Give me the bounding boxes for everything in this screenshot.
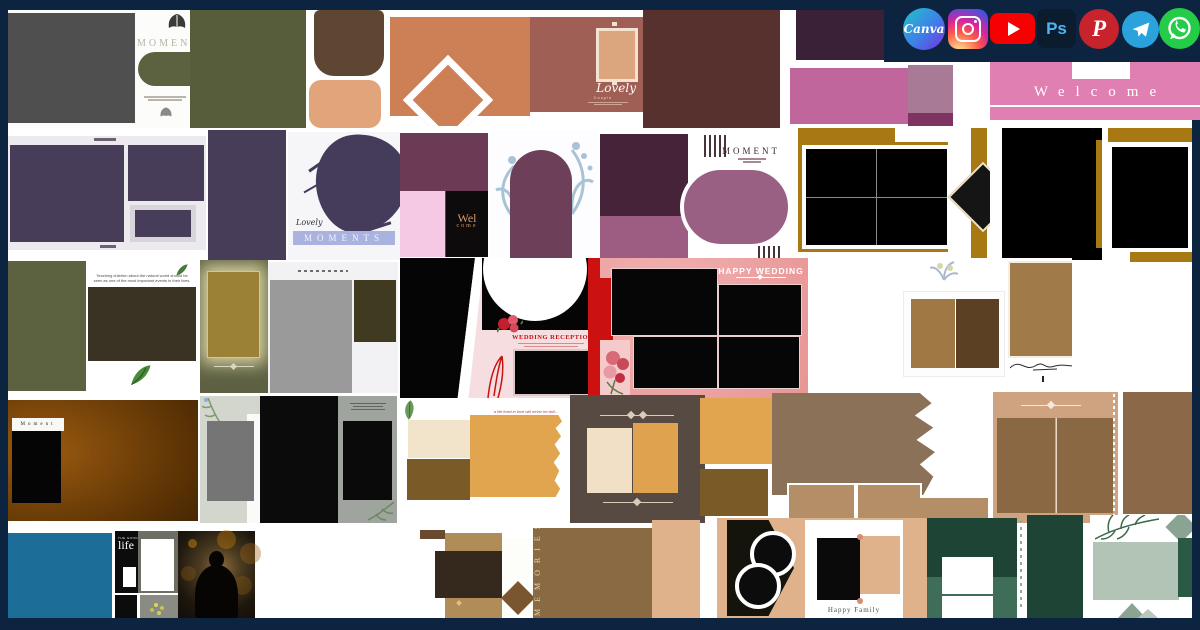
template-brush-moments: Lovely MOMENTS <box>288 132 400 260</box>
dotted-column <box>1020 520 1022 610</box>
template-sage <box>200 396 260 523</box>
photo-grid <box>802 145 951 249</box>
photo-placeholder <box>354 280 396 342</box>
pink-band <box>990 107 1200 120</box>
template-title: Welcome <box>1023 84 1167 101</box>
brown-block: MEMORIES <box>533 528 652 618</box>
photo-placeholder <box>314 10 384 76</box>
floral-doodle <box>100 245 116 248</box>
brown-panel <box>1123 392 1192 514</box>
signature-scribble <box>1005 356 1072 376</box>
text-block: Wel come <box>446 191 488 257</box>
photo-placeholder <box>135 210 191 237</box>
photo-placeholder <box>435 551 502 598</box>
paper-plane-icon <box>1131 20 1151 40</box>
photo-placeholder <box>128 145 204 201</box>
photo-placeholder <box>1112 147 1188 248</box>
template-lovely-couple: Lovely Couple <box>530 17 643 112</box>
photo-placeholder <box>911 299 955 368</box>
bokeh-dots <box>188 539 197 548</box>
template-caption: a life lived in love will never be dull.… <box>485 409 567 414</box>
amber-brown-column <box>700 396 772 518</box>
template-green-leaves <box>1090 515 1192 618</box>
text-block: THE GOOD life <box>115 531 138 593</box>
template-rounded-frames <box>306 10 390 128</box>
photo-placeholder <box>408 420 470 458</box>
photo-placeholder <box>718 284 802 336</box>
template-olive-glow <box>200 260 268 393</box>
palm-leaf-icon <box>482 354 508 400</box>
caption-line <box>594 104 622 105</box>
leaf-icon <box>128 363 154 387</box>
youtube-icon[interactable] <box>990 13 1035 44</box>
template-wedding-reception: WEDDING RECEPTION <box>400 258 600 403</box>
gold-bar <box>1130 252 1192 262</box>
olive-panel <box>8 261 86 391</box>
template-gold-grid <box>790 128 990 262</box>
template-moments: MOMENTS <box>8 10 190 128</box>
photo-placeholder <box>600 216 688 260</box>
caption-line <box>743 161 761 163</box>
barcode-deco <box>758 246 782 258</box>
template-tan-ornament <box>993 392 1118 523</box>
template-good-life: THE GOOD life <box>112 530 267 618</box>
template-dark-ornament <box>570 395 705 523</box>
photo-placeholder <box>138 52 190 86</box>
photo-placeholder <box>8 13 135 123</box>
monstera-leaf-icon <box>158 106 174 122</box>
template-subtitle: Couple <box>570 95 636 100</box>
red-stripe <box>588 258 600 403</box>
photo-placeholder <box>1008 261 1072 358</box>
photo-placeholder <box>997 418 1055 513</box>
gold-bar <box>1108 128 1192 142</box>
photo-placeholder <box>700 398 772 464</box>
caption-line <box>148 99 182 101</box>
brown-sliver <box>420 530 445 539</box>
bokeh-block <box>140 595 178 618</box>
template-title: MEMORIES <box>533 532 542 616</box>
canva-icon[interactable]: Canva <box>903 8 945 50</box>
photo-placeholder <box>1093 542 1179 600</box>
template-title: MOMENTS <box>304 233 384 243</box>
photo-placeholder <box>908 113 953 126</box>
photo-placeholder <box>1056 418 1113 513</box>
camera-flash-dot <box>974 20 977 23</box>
photo-placeholder <box>270 280 352 393</box>
photo-placeholder <box>908 65 953 113</box>
caption-line <box>144 96 186 98</box>
template-title-line1: Wel <box>446 213 488 223</box>
photo-placeholder <box>680 166 790 248</box>
white-panel: Happy Family <box>805 520 903 618</box>
template-taupe-wavy <box>772 393 988 523</box>
ornament-divider <box>600 415 674 416</box>
pink-blocks <box>790 62 990 128</box>
olive-panel <box>190 10 306 128</box>
template-caption: Happy Family <box>805 606 903 614</box>
template-label: Moment <box>21 422 56 427</box>
template-purple-frames <box>8 136 206 250</box>
caption-line <box>738 158 766 160</box>
template-script: Lovely <box>296 218 322 227</box>
template-memories: MEMORIES <box>420 528 652 618</box>
photo-placeholder <box>817 538 860 600</box>
photo-placeholder <box>596 28 638 82</box>
pink-band <box>990 62 1072 79</box>
rose-cluster-icon <box>497 314 523 334</box>
leaf-sprig-icon <box>368 502 396 522</box>
exclaim-dot <box>1042 376 1044 382</box>
template-brown-squares <box>810 258 1072 395</box>
ornament-divider <box>298 270 348 272</box>
template-moment-pill: MOMENT <box>600 130 790 260</box>
black-gold-panel <box>1002 128 1102 260</box>
tan-panel <box>652 520 700 618</box>
label-box: Moment <box>12 418 64 431</box>
torn-white-edge <box>254 531 267 618</box>
photo-placeholder <box>343 421 392 500</box>
frame-dot <box>612 22 617 26</box>
floral-doodle <box>94 138 116 141</box>
person-body <box>195 565 238 618</box>
photo-placeholder <box>141 539 174 591</box>
photo-placeholder <box>115 595 137 618</box>
photo-placeholder <box>787 483 856 522</box>
template-welcome: Welcome <box>990 62 1200 120</box>
template-wel-come: Wel come <box>400 133 488 257</box>
photo-placeholder <box>587 428 632 493</box>
caption-line <box>518 343 584 344</box>
mountains-icon <box>1118 601 1162 618</box>
photo-placeholder <box>513 349 594 396</box>
photo-placeholder <box>207 271 260 358</box>
flower-dots <box>154 603 158 607</box>
sparkle <box>456 600 462 606</box>
template-caption: Teaching children about the natural worl… <box>92 273 192 283</box>
photo-placeholder <box>790 68 908 124</box>
pinterest-label: P <box>1092 16 1106 42</box>
template-arch <box>490 130 598 260</box>
photo-placeholder <box>700 469 768 516</box>
photo-placeholder <box>207 421 254 501</box>
rose-bouquet-icon <box>601 348 631 396</box>
photo-placeholder <box>942 557 993 594</box>
template-title: life <box>118 540 138 551</box>
collage-banner: MOMENTS Lovely Couple Canva Ps P <box>0 0 1200 630</box>
photo-placeholder <box>718 336 800 389</box>
photo-placeholder <box>856 483 922 522</box>
template-green-frames <box>927 518 1017 618</box>
phone-bubble-icon <box>1166 15 1193 42</box>
template-gray-frames <box>268 262 398 393</box>
caption-line <box>588 102 628 103</box>
pink-band: Welcome <box>990 79 1200 105</box>
flower-dot <box>857 598 863 604</box>
gold-sliver <box>1096 140 1102 248</box>
template-title: MOMENT <box>716 146 786 156</box>
ornament-diamond <box>633 498 641 506</box>
template-moment-dark: Moment <box>8 400 198 521</box>
template-terracotta <box>390 12 530 126</box>
template-title: Lovely <box>570 81 636 95</box>
flower-dot <box>857 534 863 540</box>
template-title-line2: come <box>446 223 488 229</box>
teal-panel <box>8 533 112 618</box>
photo-placeholder <box>918 498 988 520</box>
purple-panel <box>208 130 286 260</box>
photo-placeholder <box>12 431 61 503</box>
caption-line <box>351 409 385 410</box>
wavy-photo <box>772 393 940 495</box>
camera-glyph <box>955 16 981 42</box>
template-title: WEDDING RECEPTION <box>512 334 592 341</box>
ornament-diamond <box>1047 401 1055 409</box>
canva-label: Canva <box>904 22 945 36</box>
pink-band <box>1130 62 1200 79</box>
leaf-icon <box>402 400 419 421</box>
caption-line <box>524 346 578 347</box>
template-title: MOMENTS <box>137 38 190 49</box>
photoshop-icon[interactable]: Ps <box>1037 9 1076 48</box>
title-band: MOMENTS <box>293 231 395 245</box>
ornament-diamond <box>627 411 635 419</box>
pinterest-icon[interactable]: P <box>1079 9 1119 49</box>
ornament-diamond <box>639 411 647 419</box>
play-icon <box>1008 22 1020 36</box>
silhouette-photo <box>178 531 255 618</box>
template-happy-family: Happy Family <box>700 518 927 618</box>
photo-placeholder <box>633 336 718 389</box>
template-nature-quote: Teaching children about the natural worl… <box>86 261 198 391</box>
maroon-panel <box>643 10 780 128</box>
monstera-leaf-icon <box>166 12 188 36</box>
whatsapp-icon[interactable] <box>1159 8 1200 49</box>
photo-placeholder <box>309 80 381 128</box>
photo-placeholder <box>600 134 688 216</box>
photo-placeholder <box>956 299 999 368</box>
template-gold-black <box>1108 128 1192 262</box>
template-happy-wedding: HAPPY WEDDING <box>600 258 808 403</box>
dark-purple-panel <box>796 10 884 60</box>
photoshop-label: Ps <box>1046 19 1067 39</box>
instagram-icon[interactable] <box>948 9 988 49</box>
torn-block <box>470 415 562 497</box>
photo-placeholder <box>88 287 196 361</box>
black-panel <box>260 396 338 523</box>
photo-placeholder <box>633 423 678 493</box>
leaf-sprig-icon <box>930 260 958 282</box>
photo-placeholder <box>942 596 993 618</box>
grid-line <box>806 197 947 198</box>
photo-placeholder <box>611 268 718 336</box>
dotted-column <box>1113 394 1115 521</box>
photo-placeholder <box>860 536 900 594</box>
template-torn-amber: a life lived in love will never be dull.… <box>397 398 570 520</box>
ornament-diamond <box>230 362 237 369</box>
circle-photo <box>735 563 781 609</box>
caption-line <box>353 406 383 407</box>
photo-placeholder <box>407 459 470 500</box>
green-panel <box>1027 515 1083 618</box>
photo-placeholder <box>400 191 445 257</box>
caption-line <box>350 403 386 404</box>
photo-placeholder <box>1178 538 1192 597</box>
camera-lens <box>962 23 974 35</box>
photo-placeholder <box>10 145 124 242</box>
telegram-icon[interactable] <box>1122 11 1159 48</box>
leaf-branch-icon <box>1095 515 1161 541</box>
photo-placeholder <box>123 567 136 587</box>
photo-placeholder <box>510 150 572 260</box>
template-gray-caption <box>338 396 397 523</box>
